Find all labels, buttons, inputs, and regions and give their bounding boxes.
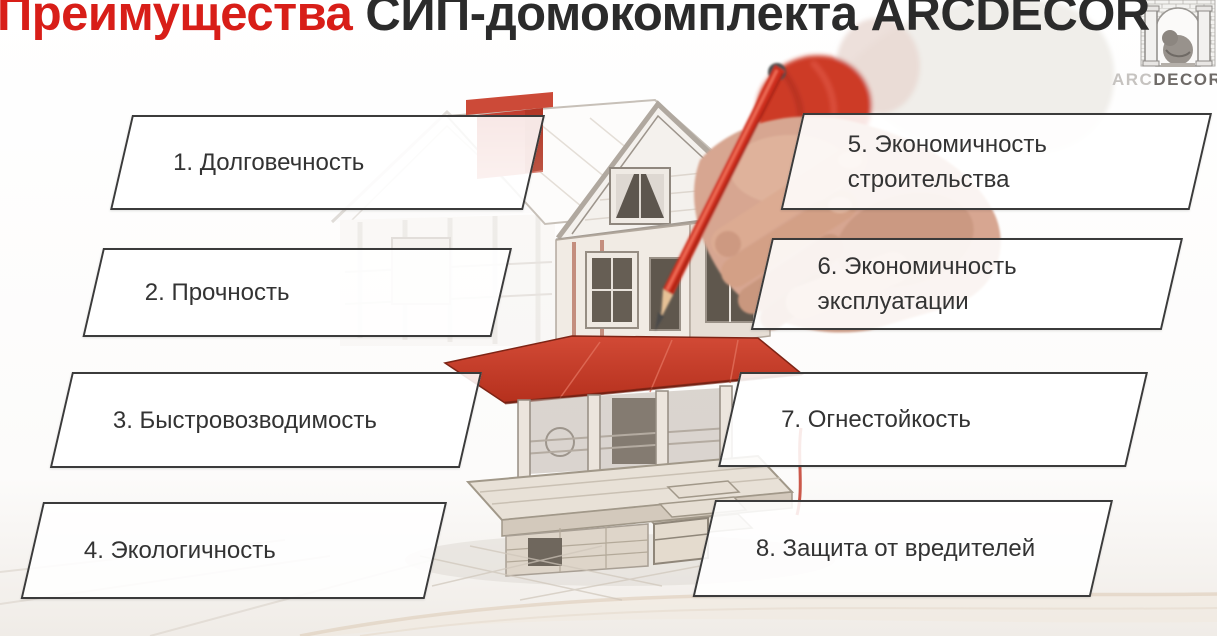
slide-canvas: Преимущества СИП-домокомплекта ARCDECOR … — [0, 0, 1217, 636]
advantage-label: 5. Экономичность — [848, 127, 1207, 162]
advantage-box-8: 8. Защита от вредителей — [693, 500, 1113, 597]
title-rest: СИП-домокомплекта ARCDECOR — [352, 0, 1149, 41]
advantage-label: 3. Быстровозводимость — [113, 403, 473, 438]
advantage-box-4: 4. Экологичность — [21, 502, 447, 599]
page-title: Преимущества СИП-домокомплекта ARCDECOR — [0, 0, 1150, 42]
logo-wordmark: ARCDECOR — [1112, 70, 1217, 90]
advantage-box-5: 5. Экономичностьстроительства — [781, 113, 1212, 210]
advantage-label: 1. Долговечность — [173, 145, 536, 180]
advantage-label-line2: строительства — [848, 162, 1207, 197]
advantage-label: 6. Экономичность — [817, 249, 1178, 284]
advantage-label-line2: эксплуатации — [817, 284, 1178, 319]
advantage-label: 2. Прочность — [145, 275, 504, 310]
advantage-label: 4. Экологичность — [84, 533, 438, 568]
advantage-box-1: 1. Долговечность — [110, 115, 545, 210]
advantage-box-6: 6. Экономичностьэксплуатации — [751, 238, 1183, 330]
advantage-label: 7. Огнестойкость — [781, 402, 1139, 437]
advantage-box-7: 7. Огнестойкость — [718, 372, 1148, 467]
logo-text-decor: DECOR — [1153, 70, 1217, 89]
title-highlight: Преимущества — [0, 0, 352, 41]
arcdecor-emblem-icon — [1141, 0, 1215, 67]
advantage-box-3: 3. Быстровозводимость — [50, 372, 482, 468]
advantage-label: 8. Защита от вредителей — [756, 531, 1104, 566]
advantage-box-2: 2. Прочность — [82, 248, 512, 337]
logo-text-arc: ARC — [1112, 70, 1153, 89]
